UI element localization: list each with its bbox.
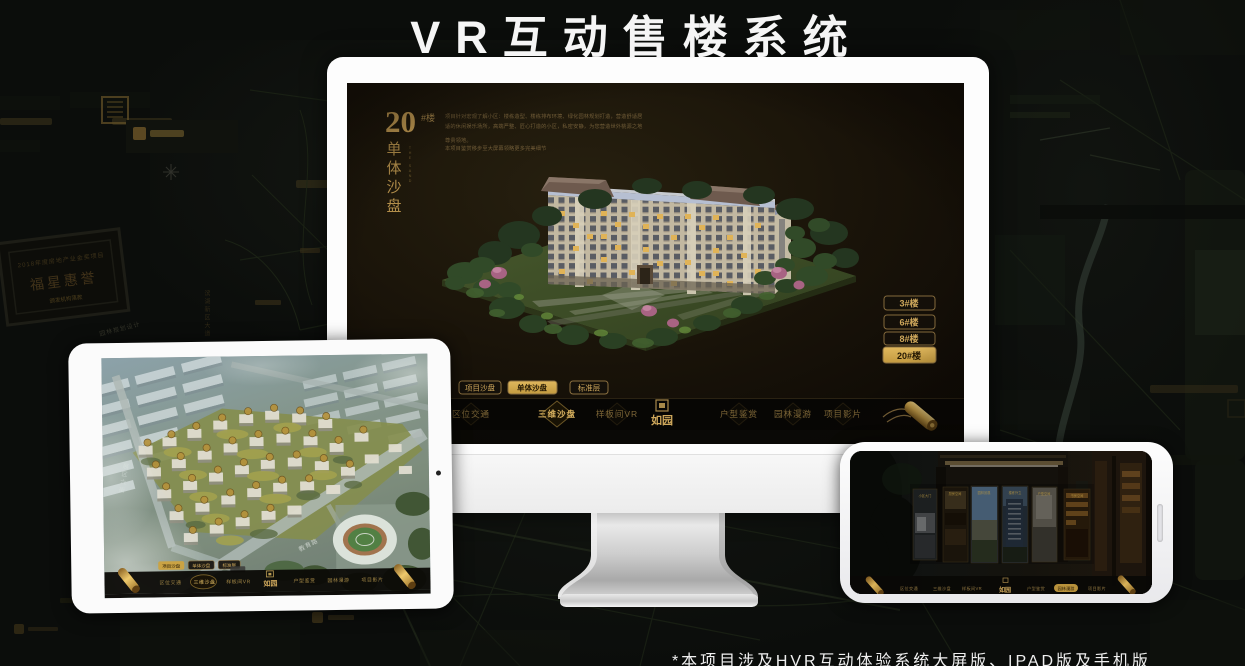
svg-text:户型空间: 户型空间 bbox=[1038, 491, 1051, 496]
svg-text:样板间VR: 样板间VR bbox=[226, 578, 251, 585]
svg-text:户型鉴赏: 户型鉴赏 bbox=[293, 577, 315, 584]
svg-text:园林漫游: 园林漫游 bbox=[1058, 585, 1076, 592]
svg-text:楼栋外立: 楼栋外立 bbox=[1009, 490, 1023, 495]
svg-text:书房空间: 书房空间 bbox=[1071, 493, 1084, 498]
svg-text:园林景观: 园林景观 bbox=[978, 490, 992, 495]
svg-text:区位交通: 区位交通 bbox=[900, 585, 918, 592]
svg-text:区位交通: 区位交通 bbox=[159, 579, 181, 586]
svg-text:三维沙盘: 三维沙盘 bbox=[933, 585, 951, 592]
svg-text:如园: 如园 bbox=[263, 579, 277, 588]
svg-text:滨湖新区大道: 滨湖新区大道 bbox=[203, 289, 210, 338]
svg-text:如园: 如园 bbox=[999, 586, 1011, 594]
svg-text:样板间VR: 样板间VR bbox=[962, 585, 982, 592]
svg-text:项目影片: 项目影片 bbox=[1088, 585, 1106, 592]
svg-text:项目影片: 项目影片 bbox=[361, 576, 383, 583]
svg-text:小区大门: 小区大门 bbox=[919, 493, 932, 498]
svg-text:户型鉴赏: 户型鉴赏 bbox=[1027, 585, 1045, 592]
svg-text:三维沙盘: 三维沙盘 bbox=[193, 579, 215, 586]
svg-text:厨房空间: 厨房空间 bbox=[949, 491, 962, 496]
svg-text:园林漫游: 园林漫游 bbox=[327, 577, 349, 584]
